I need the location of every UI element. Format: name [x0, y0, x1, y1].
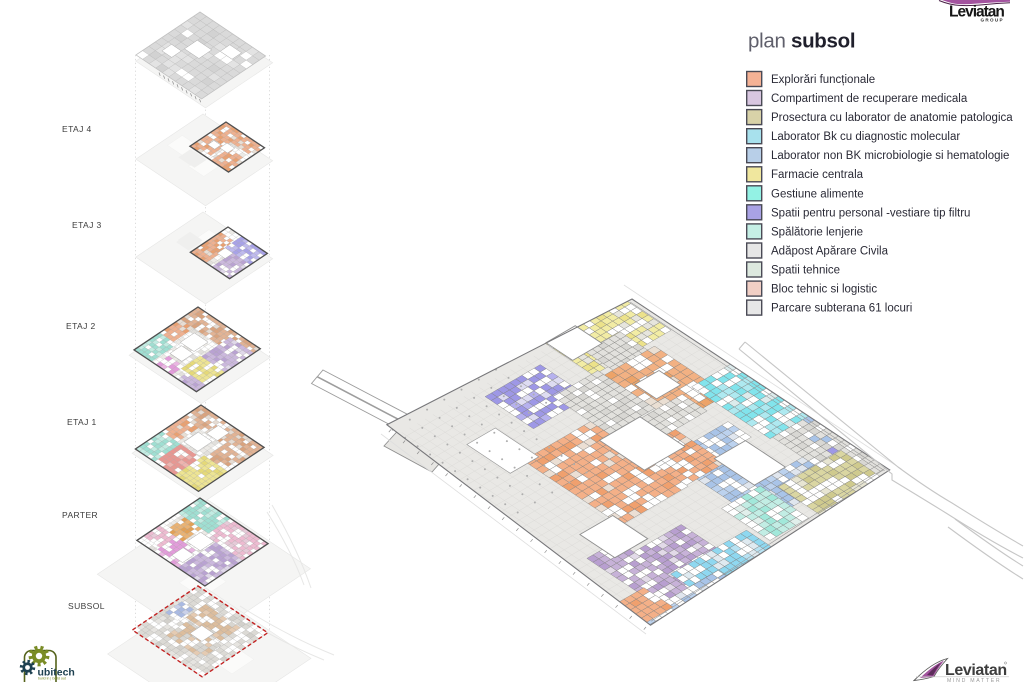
svg-text:Farmacie centrala: Farmacie centrala [771, 169, 864, 181]
svg-text:plan subsol: plan subsol [748, 30, 855, 53]
svg-text:Prosectura cu laborator de ana: Prosectura cu laborator de anatomie pato… [771, 112, 1013, 124]
svg-text:GROUP: GROUP [981, 18, 1004, 23]
svg-text:Laborator Bk cu diagnostic mol: Laborator Bk cu diagnostic molecular [771, 131, 960, 143]
svg-text:build in | build out: build in | build out [38, 676, 66, 680]
svg-text:Spălătorie lenjerie: Spălătorie lenjerie [771, 226, 863, 238]
svg-text:Spatii tehnice: Spatii tehnice [771, 265, 840, 277]
svg-text:PARTER: PARTER [62, 510, 98, 520]
svg-text:Explorări funcționale: Explorări funcționale [771, 74, 875, 86]
svg-text:ETAJ 1: ETAJ 1 [67, 417, 97, 427]
svg-text:ETAJ 4: ETAJ 4 [62, 124, 92, 134]
svg-text:Laborator non BK microbiologie: Laborator non BK microbiologie si hemato… [771, 150, 1009, 162]
svg-text:ETAJ 3: ETAJ 3 [72, 220, 102, 230]
svg-text:Parcare subterana 61 locuri: Parcare subterana 61 locuri [771, 303, 912, 315]
svg-text:Adăpost Apărare Civila: Adăpost Apărare Civila [771, 246, 889, 258]
svg-text:Spatii pentru personal -vestia: Spatii pentru personal -vestiare tip fil… [771, 207, 970, 219]
svg-text:MIND MATTER: MIND MATTER [947, 678, 1001, 682]
svg-text:Compartiment de recuperare med: Compartiment de recuperare medicala [771, 93, 968, 105]
svg-text:Gestiune alimente: Gestiune alimente [771, 188, 864, 200]
svg-text:ETAJ 2: ETAJ 2 [66, 321, 96, 331]
svg-text:Bloc tehnic si logistic: Bloc tehnic si logistic [771, 284, 877, 296]
svg-text:SUBSOL: SUBSOL [68, 601, 105, 611]
